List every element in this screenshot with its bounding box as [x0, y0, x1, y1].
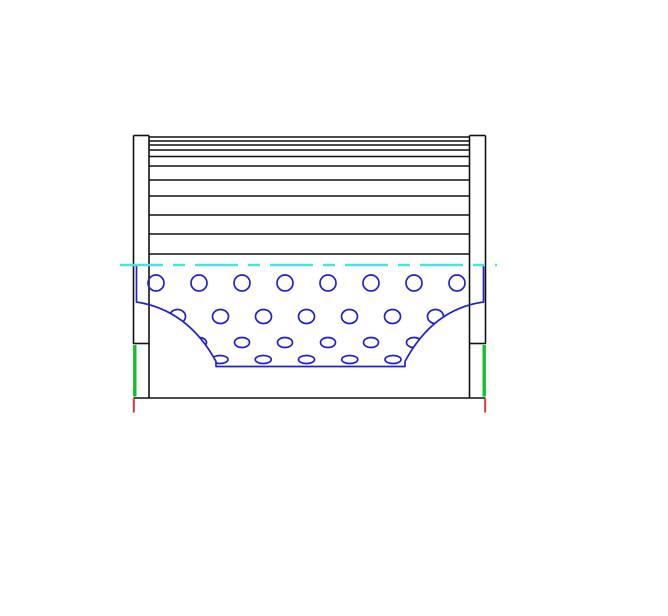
- filter-element-cross-section-drawing: [0, 0, 668, 616]
- drawing-background: [0, 0, 668, 616]
- technical-drawing-page: [0, 0, 668, 616]
